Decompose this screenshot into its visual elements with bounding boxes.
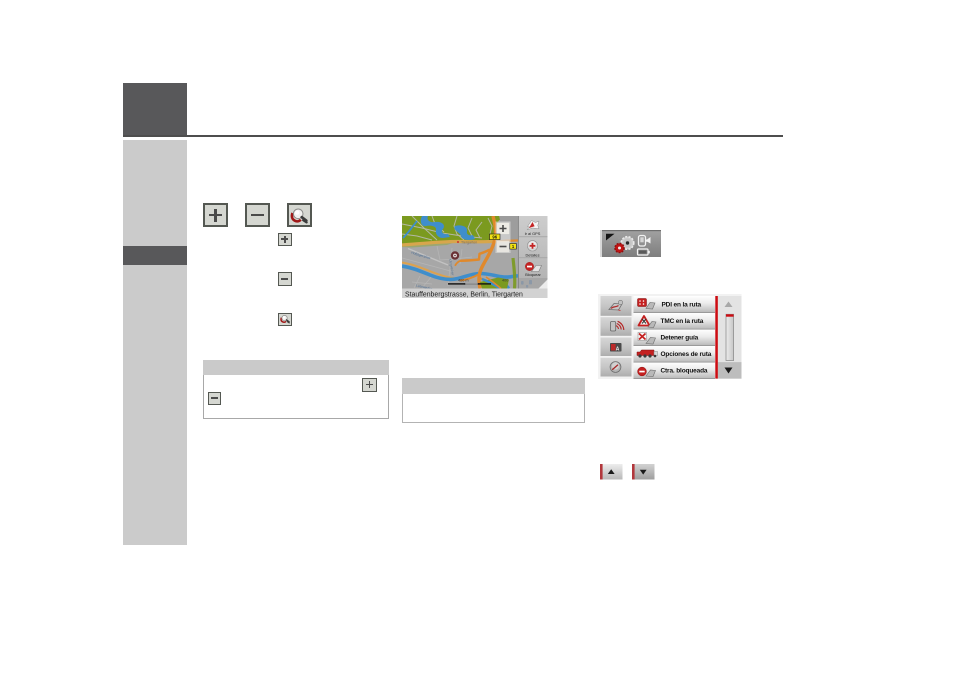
svg-text:Tiergarten: Tiergarten xyxy=(461,240,477,244)
svg-text:Detalles: Detalles xyxy=(525,252,539,257)
svg-text:Ctra. bloqueada: Ctra. bloqueada xyxy=(661,368,708,375)
svg-text:Bloquear: Bloquear xyxy=(525,272,541,277)
svg-text:Opciones de ruta: Opciones de ruta xyxy=(661,351,712,358)
svg-text:Detener guía: Detener guía xyxy=(661,335,699,342)
svg-text:PDI en la ruta: PDI en la ruta xyxy=(662,302,702,309)
svg-text:Stauffenbergstrasse, Berlin, T: Stauffenbergstrasse, Berlin, Tiergarten xyxy=(405,291,523,298)
svg-text:A: A xyxy=(616,346,620,352)
svg-text:400 m: 400 m xyxy=(458,278,469,282)
svg-text:TMC en la ruta: TMC en la ruta xyxy=(661,318,704,325)
svg-text:400: 400 xyxy=(502,278,508,282)
svg-text:Ir al GPS: Ir al GPS xyxy=(525,231,541,236)
svg-text:96: 96 xyxy=(492,234,497,239)
